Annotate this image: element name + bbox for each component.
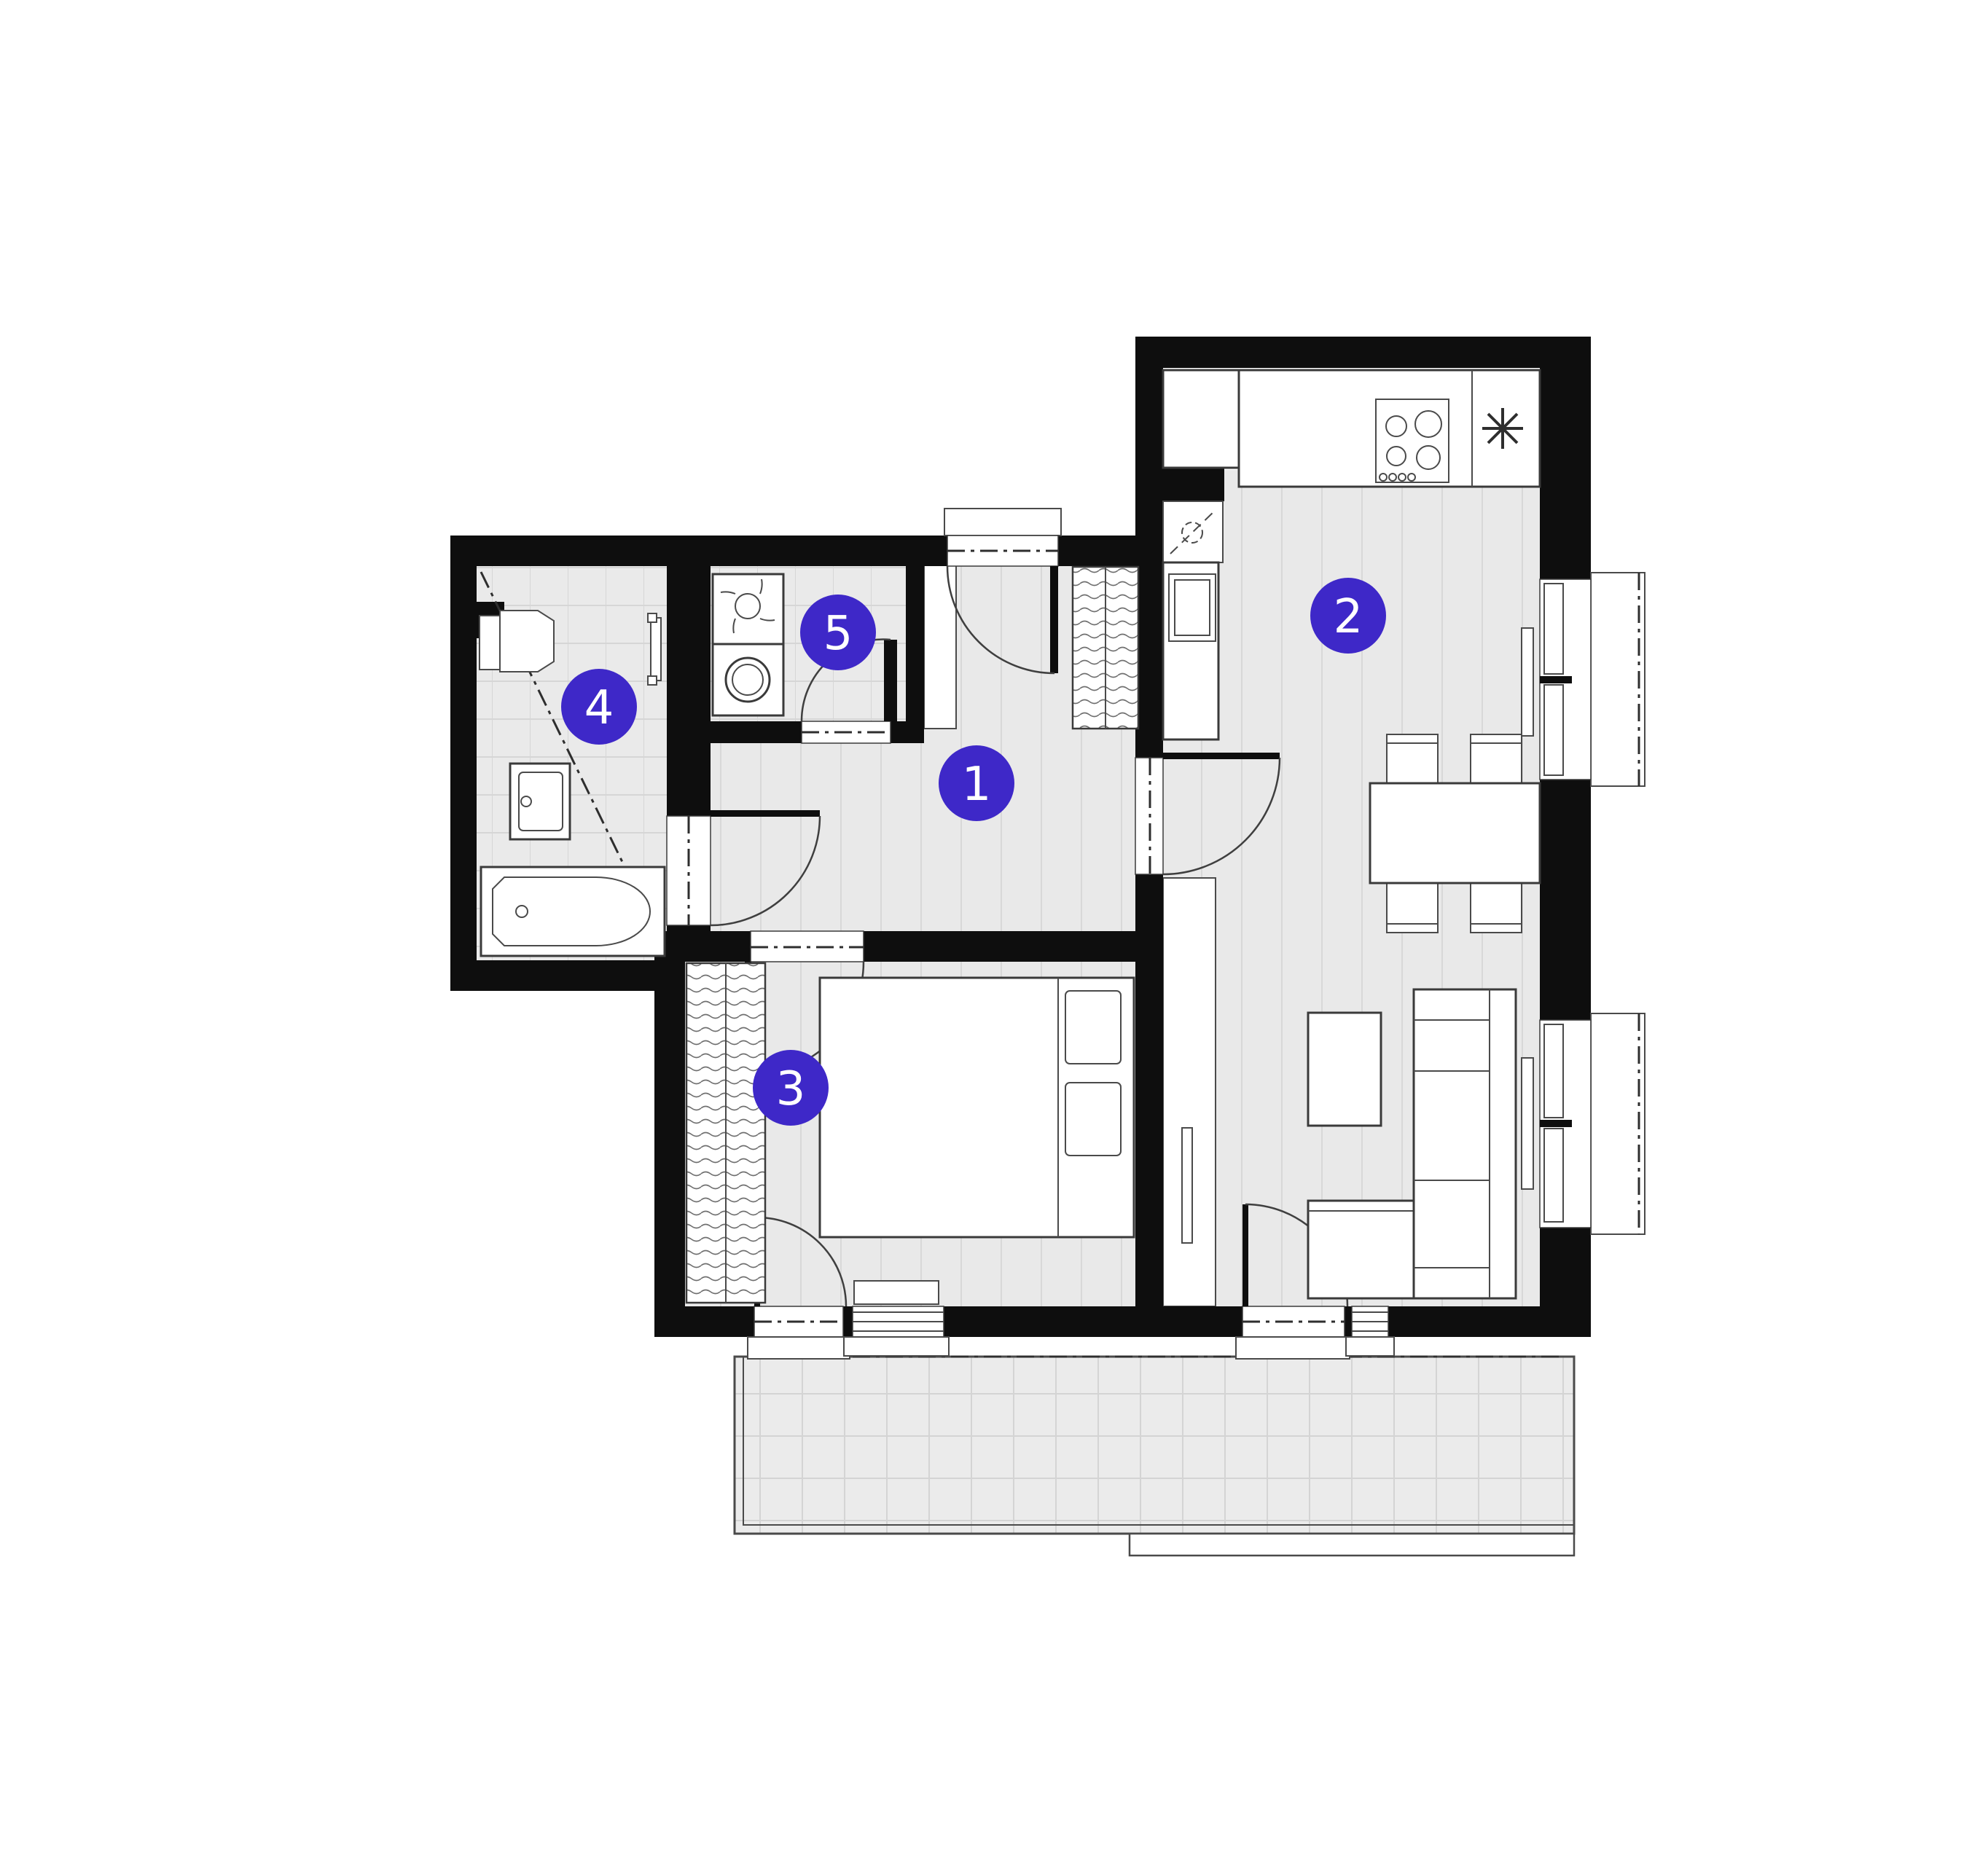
bathroom-sink [510, 764, 570, 839]
bedroom-wardrobe [686, 963, 765, 1303]
dining-chair [1387, 734, 1438, 785]
bedroom-radiator [854, 1281, 939, 1304]
floor-plan-drawing: 1 2 3 4 5 [0, 0, 1988, 1871]
room-number: 4 [584, 681, 614, 735]
radiator-living [1522, 1058, 1533, 1189]
room-marker-kitchen-living[interactable]: 2 [1310, 578, 1386, 654]
entry-niche [924, 565, 956, 729]
window-living [1540, 1013, 1645, 1234]
room-marker-bedroom[interactable]: 3 [753, 1050, 829, 1126]
room-number: 1 [962, 758, 992, 812]
dining-table [1370, 783, 1540, 883]
coffee-table [1308, 1013, 1381, 1126]
balcony-railing-step [1130, 1534, 1574, 1556]
bed [820, 978, 1134, 1237]
vent-shaft [1163, 501, 1223, 562]
dining-chair [1387, 882, 1438, 933]
room-number: 5 [823, 607, 853, 661]
cooktop [1376, 399, 1449, 482]
kitchen-sink [1169, 574, 1216, 641]
bedroom-window [844, 1306, 949, 1356]
room-marker-hallway[interactable]: 1 [939, 745, 1014, 821]
window-dining [1540, 573, 1645, 786]
radiator-dining [1522, 628, 1533, 736]
pillow [1065, 991, 1121, 1064]
kitchen-counter [1239, 370, 1540, 487]
refrigerator-symbol [1482, 408, 1523, 449]
tv [1182, 1128, 1192, 1243]
dining-chair [1471, 734, 1522, 785]
balcony-floor [735, 1357, 1574, 1534]
living-window [1346, 1306, 1394, 1356]
sofa-chaise [1308, 1201, 1414, 1298]
room-number: 3 [776, 1062, 806, 1116]
hallway-wardrobe [1073, 567, 1138, 729]
shaft [1163, 370, 1239, 468]
laundry-fixtures [713, 574, 783, 715]
bathtub [481, 867, 665, 956]
toilet [480, 611, 554, 672]
pillow [1065, 1083, 1121, 1156]
floor-plan-page: 1 2 3 4 5 [0, 0, 1988, 1871]
kitchen-sink-counter [1163, 562, 1218, 740]
room-marker-laundry[interactable]: 5 [800, 595, 876, 670]
dining-chair [1471, 882, 1522, 933]
room-number: 2 [1334, 590, 1363, 644]
room-marker-bathroom[interactable]: 4 [561, 669, 637, 745]
